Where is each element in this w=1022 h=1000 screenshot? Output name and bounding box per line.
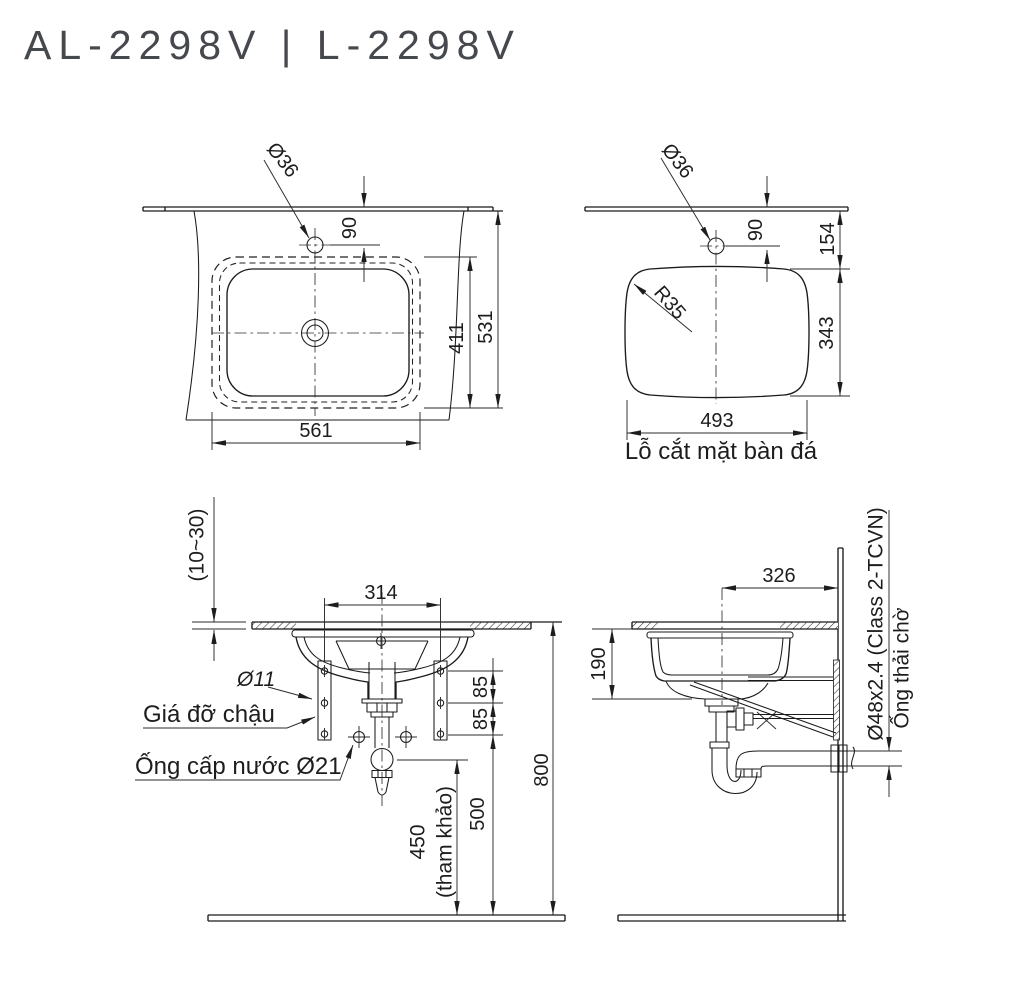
dim-cutout-width: 493	[700, 410, 733, 432]
drawing-sheet: AL-2298V | L-2298V	[0, 0, 1022, 1000]
dim-plan-bowl-width: 561	[299, 420, 332, 442]
dim-cutout-edge-dist: 154	[817, 222, 839, 255]
plan-view: Ø36 90 411 531 561	[143, 139, 503, 450]
supply-label: Ống cấp nước Ø21	[135, 752, 342, 780]
front-view: Ø11 Giá đỡ chậu Ống cấp nước Ø21 (10~30)…	[135, 497, 565, 921]
dim-supply-height: 500	[467, 797, 489, 830]
dim-bracket-hole-dia: Ø11	[236, 668, 275, 691]
technical-drawing: Ø36 90 411 531 561 Ø3	[0, 0, 1022, 1000]
dim-counter-thickness: (10~30)	[185, 509, 208, 582]
dim-plan-bowl-depth: 411	[446, 322, 468, 354]
dim-cutout-radius: R35	[649, 282, 690, 324]
dim-bracket-spacing: 314	[364, 582, 397, 604]
waste-pipe-spec: Ø48x2.4 (Class 2-TCVN)	[864, 507, 887, 740]
dim-bowl-height: 190	[588, 647, 610, 680]
cutout-caption: Lỗ cắt mặt bàn đá	[625, 438, 818, 465]
cutout-view: Ø36 90 154 R35 343 493 Lỗ cắt mặt bàn đá	[585, 140, 850, 465]
side-view: 326 190 Ø48x2.4 (Class 2-TCVN) Ống thải …	[588, 507, 913, 921]
dim-hole-gap-2: 85	[470, 708, 492, 730]
dim-plan-hole-offset: 90	[339, 217, 361, 239]
dim-plan-overall-depth: 531	[475, 310, 497, 343]
dim-counter-height: 800	[531, 753, 553, 786]
dim-drain-height: 450	[406, 824, 429, 859]
dim-drain-height-note: (tham khảo)	[433, 786, 456, 898]
dim-center-to-wall: 326	[762, 565, 795, 587]
dim-plan-faucet-dia: Ø36	[262, 139, 303, 182]
dim-hole-gap-1: 85	[470, 676, 492, 698]
bracket-label: Giá đỡ chậu	[143, 701, 275, 728]
waste-pipe-label: Ống thải chờ	[889, 607, 913, 728]
dim-cutout-hole-offset: 90	[745, 219, 767, 241]
dim-cutout-depth: 343	[816, 316, 838, 349]
